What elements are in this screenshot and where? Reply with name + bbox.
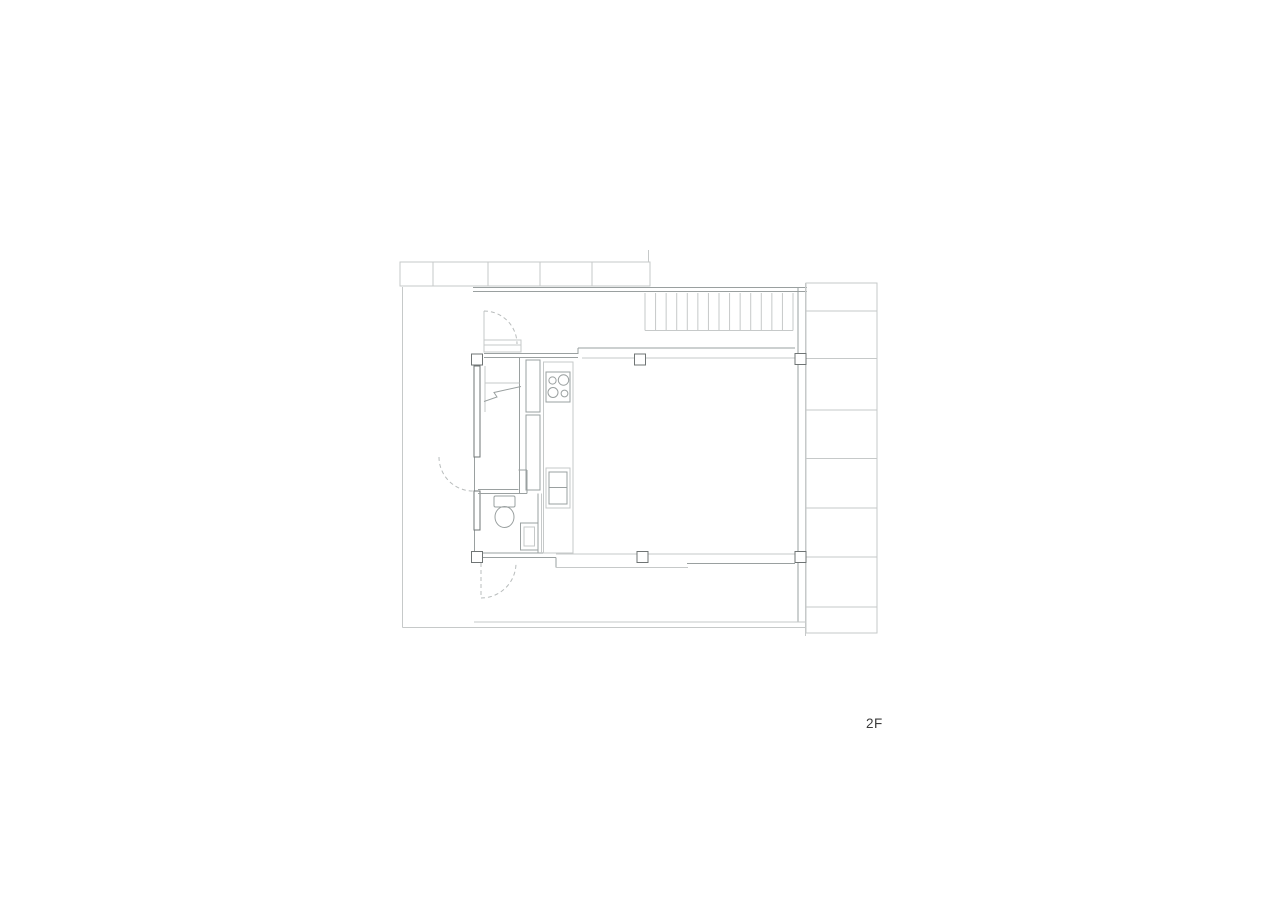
- kitchen-tall-cabinet: [526, 360, 540, 412]
- cooktop-burner: [558, 375, 568, 385]
- cooktop-burner: [549, 377, 556, 384]
- cooktop-burner: [561, 390, 568, 397]
- column: [472, 552, 483, 563]
- toilet-tank: [494, 496, 515, 507]
- west-wall-solid-upper: [474, 366, 480, 457]
- entry-door-swing-arc: [484, 311, 517, 344]
- cooktop: [546, 372, 570, 402]
- floor-label: 2F: [866, 716, 883, 731]
- floor-plan-page: 2F: [0, 0, 1280, 904]
- top-eave-band: [400, 262, 650, 286]
- floor-plan-svg: [0, 0, 1280, 904]
- column: [795, 354, 806, 365]
- column: [637, 552, 648, 563]
- column: [635, 354, 646, 365]
- stair-break-line: [484, 387, 521, 402]
- washbasin-inner: [524, 527, 535, 546]
- west-wall-solid-lower: [474, 491, 480, 530]
- column: [472, 354, 483, 365]
- cooktop-burner: [548, 388, 558, 398]
- west-door-swing-arc: [439, 457, 473, 491]
- toilet-bowl: [495, 507, 514, 528]
- column: [795, 552, 806, 563]
- kitchen-refrigerator: [526, 415, 540, 490]
- entry-cabinet: [484, 340, 521, 352]
- wc-door-swing-arc: [481, 563, 516, 598]
